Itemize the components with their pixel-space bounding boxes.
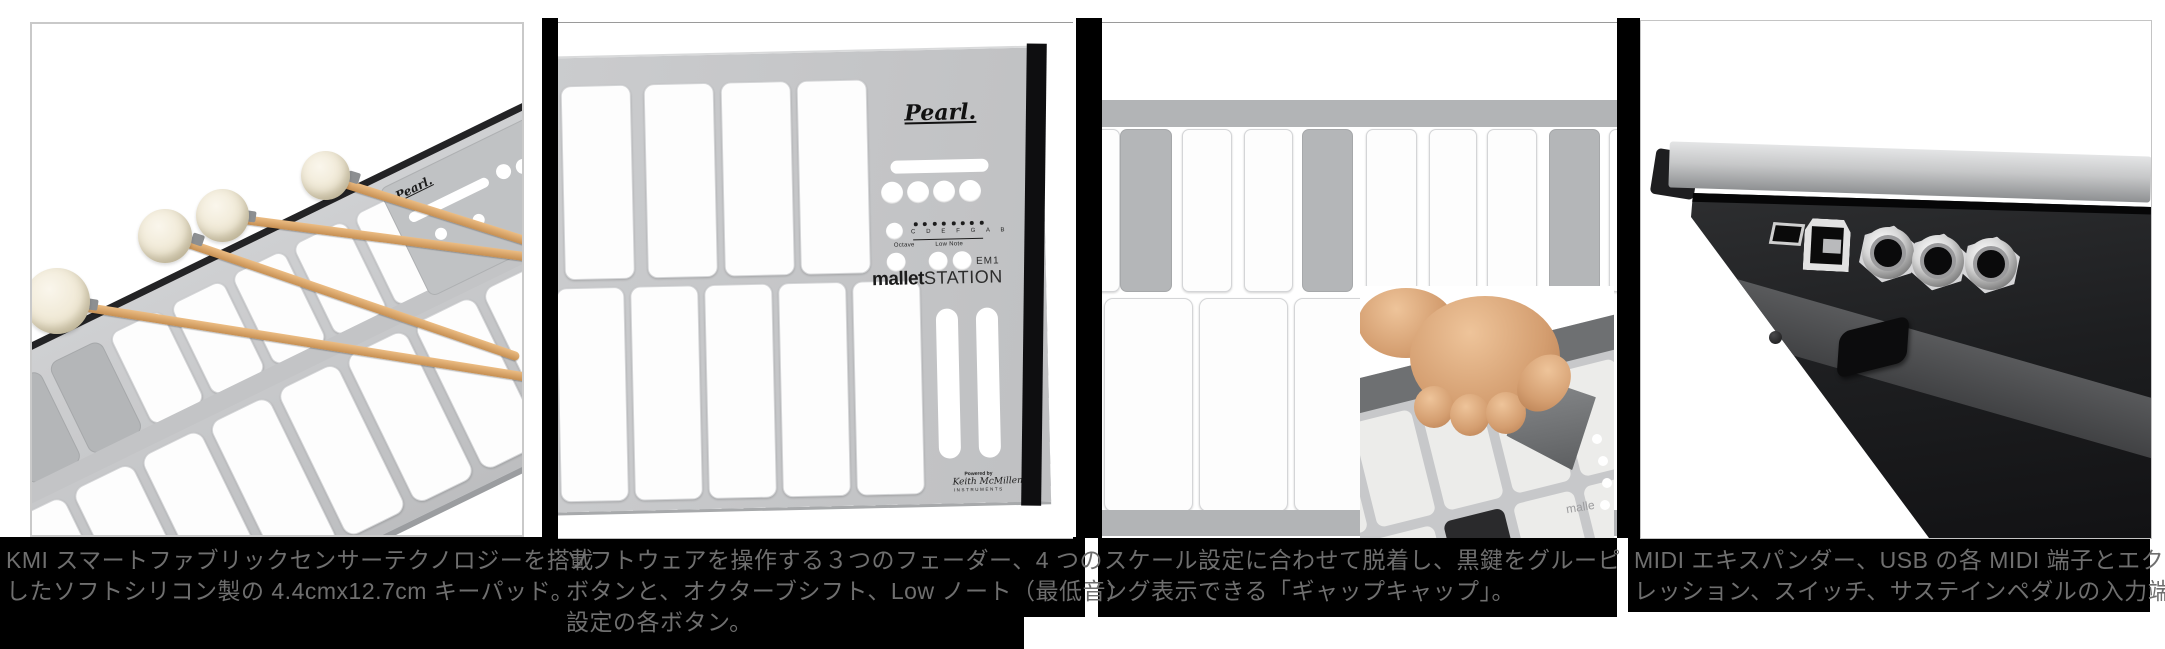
caption-3: スケール設定に合わせて脱着し、黒鍵をグルーピ ング表示できる「ギャップキャップ」… — [1104, 545, 1621, 607]
product-name-light: STATION — [924, 266, 1003, 288]
low-note-label: Low Note — [925, 241, 973, 248]
mallet-head — [196, 189, 249, 242]
panel-gap-3 — [1617, 18, 1640, 538]
kmm-sub: INSTRUMENTS — [953, 486, 1005, 492]
caption-1-line-1: KMI スマートファブリックセンサーテクノロジーを搭載 — [6, 545, 594, 576]
white-key — [1487, 129, 1537, 292]
note-underline — [913, 238, 983, 241]
white-key — [558, 287, 629, 502]
white-key — [778, 282, 851, 497]
panel-gap-2 — [1076, 18, 1102, 538]
note-led-dot — [951, 221, 955, 225]
pedal-jack-hole — [1920, 243, 1956, 279]
white-key — [797, 79, 871, 275]
mini-button — [494, 162, 514, 182]
device-edge-strip — [1021, 43, 1047, 505]
midi-expander-port — [1769, 222, 1806, 246]
fader-slot-vertical — [976, 307, 1001, 457]
note-led-dot — [942, 222, 946, 226]
note-led-dot — [923, 222, 927, 226]
white-key — [1102, 129, 1120, 292]
caption-3-line-1: スケール設定に合わせて脱着し、黒鍵をグルーピ — [1104, 545, 1621, 576]
gap-cap-key — [1302, 129, 1353, 292]
photo-panel-mallets: Pearl. malletSTATION — [30, 22, 524, 537]
screw — [1769, 331, 1782, 344]
usb-port — [1803, 218, 1852, 272]
note-led-dot — [933, 222, 937, 226]
caption-2-line-2: ボタンと、オクターブシフト、Low ノート（最低音） — [566, 576, 1129, 607]
white-key — [1429, 129, 1477, 292]
caption-4-line-2: レッション、スイッチ、サステインペダルの入力端子。 — [1634, 576, 2165, 607]
caption-4-line-1: MIDI エキスパンダー、USB の各 MIDI 端子とエクスプ — [1634, 545, 2165, 576]
note-led-dot — [980, 221, 984, 225]
keyboard-band: Pearl. malletSTATION — [30, 62, 524, 537]
pedal-jack-hole — [1870, 235, 1906, 271]
note-led-dot — [961, 221, 965, 225]
note-led-dot — [970, 221, 974, 225]
finger — [1450, 394, 1490, 436]
inset-button — [1602, 478, 1612, 488]
usb-port-tab — [1823, 239, 1842, 254]
photo-panel-gapcaps: malle — [1102, 22, 1617, 538]
keyboard-frame-top — [1102, 100, 1617, 127]
caption-2-line-3: 設定の各ボタン。 — [566, 607, 1129, 638]
inset-button — [1598, 456, 1608, 466]
white-key — [1182, 129, 1232, 292]
keith-mcmillen-logo: Powered by Keith McMillen INSTRUMENTS — [952, 470, 1004, 492]
photo-panel-controls: Pearl. C D E F G A B Octave Low Note EM1… — [558, 22, 1073, 539]
caption-2: ソフトウェアを操作する３つのフェーダー、4 つの ボタンと、オクターブシフト、L… — [566, 545, 1129, 638]
product-name-bold: mallet — [872, 268, 924, 290]
white-key — [644, 83, 718, 279]
note-led-dot — [914, 222, 918, 226]
gap-cap-key — [1120, 129, 1172, 292]
caption-1: KMI スマートファブリックセンサーテクノロジーを搭載 したソフトシリコン製の … — [6, 545, 594, 607]
gap-cap-key — [1549, 129, 1600, 292]
note-letters: C D E F G A B — [911, 228, 987, 236]
control-cluster: Pearl. C D E F G A B Octave Low Note EM1… — [882, 98, 1011, 521]
function-button — [933, 180, 955, 202]
model-label: EM1 — [976, 255, 1000, 267]
mallet-head — [301, 151, 350, 200]
caption-2-line-1: ソフトウェアを操作する３つのフェーダー、4 つの — [566, 545, 1129, 576]
white-key — [1609, 129, 1617, 292]
white-key — [1104, 298, 1193, 512]
white-key — [704, 284, 777, 499]
inset-photo-cap-peel: malle — [1360, 286, 1614, 538]
function-button — [959, 180, 981, 202]
fader-slot — [890, 159, 988, 174]
function-button — [907, 181, 929, 203]
function-button — [881, 182, 903, 204]
fader-slot-vertical — [936, 308, 961, 458]
finger — [1414, 386, 1454, 428]
brand-logo: Pearl. — [886, 98, 995, 126]
mini-button — [513, 156, 524, 176]
caption-3-line-2: ング表示できる「ギャップキャップ」。 — [1104, 576, 1621, 607]
white-key — [721, 81, 795, 277]
white-key — [1199, 298, 1288, 512]
white-key — [561, 85, 635, 281]
hand — [1388, 294, 1588, 474]
inset-button — [1600, 500, 1610, 510]
octave-up-button — [886, 223, 903, 240]
caption-1-line-2: したソフトシリコン製の 4.4cmx12.7cm キーパッド。 — [6, 576, 594, 607]
pedal-jack-hole — [1973, 246, 2009, 282]
caption-4: MIDI エキスパンダー、USB の各 MIDI 端子とエクスプ レッション、ス… — [1634, 545, 2165, 607]
photo-panel-rear-ports — [1640, 20, 2152, 539]
inset-button — [1592, 434, 1602, 444]
mallet-head — [138, 209, 192, 263]
malletstation-body: Pearl. C D E F G A B Octave Low Note EM1… — [558, 45, 1051, 512]
product-name: malletSTATION — [872, 266, 998, 291]
product-gallery: Pearl. malletSTATION — [0, 0, 2165, 649]
rear-lower-band — [1665, 263, 2152, 462]
white-key — [630, 285, 703, 500]
octave-label: Octave — [885, 242, 923, 249]
panel-gap-1 — [542, 18, 558, 538]
white-key — [1244, 129, 1293, 292]
usb-port-inner — [1810, 226, 1844, 265]
rear-black-body — [1641, 21, 2151, 538]
white-key — [1366, 129, 1417, 292]
rear-silver-edge — [1668, 141, 2151, 202]
